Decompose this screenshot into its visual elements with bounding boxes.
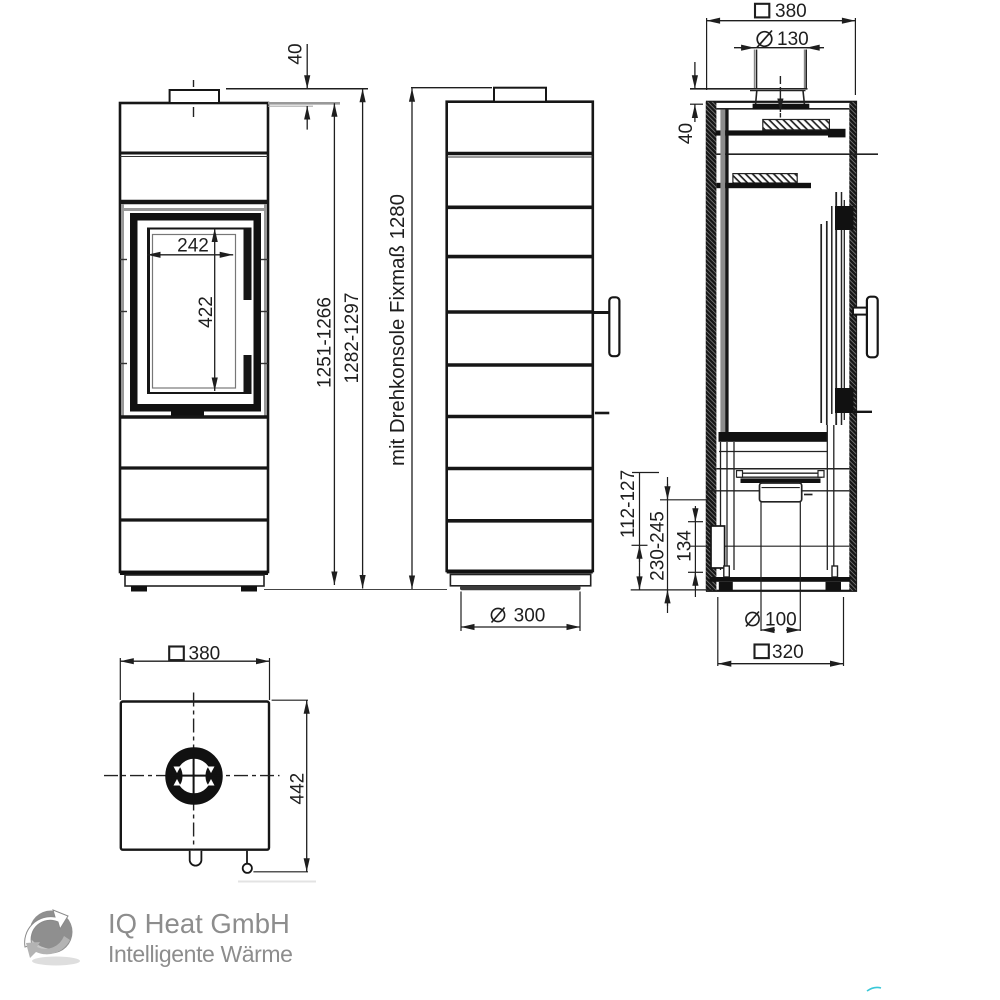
svg-text:380: 380 (775, 1, 807, 22)
svg-text:40: 40 (286, 43, 307, 64)
svg-text:1251-1266: 1251-1266 (315, 297, 336, 388)
svg-text:Intelligente Wärme: Intelligente Wärme (108, 941, 293, 967)
svg-text:300: 300 (514, 606, 546, 627)
svg-text:422: 422 (196, 296, 217, 328)
svg-text:mit Drehkonsole Fixmaß 1280: mit Drehkonsole Fixmaß 1280 (387, 194, 409, 466)
svg-text:320: 320 (772, 642, 804, 663)
svg-text:230-245: 230-245 (648, 511, 669, 581)
svg-text:112-127: 112-127 (618, 470, 639, 538)
svg-text:130: 130 (777, 29, 809, 50)
svg-text:40: 40 (676, 123, 697, 144)
svg-text:242: 242 (177, 236, 209, 257)
svg-text:134: 134 (675, 530, 696, 562)
svg-text:1282-1297: 1282-1297 (342, 293, 363, 384)
svg-text:442: 442 (288, 773, 309, 805)
svg-text:380: 380 (189, 644, 221, 665)
svg-text:100: 100 (765, 610, 797, 631)
svg-text:IQ Heat GmbH: IQ Heat GmbH (108, 908, 290, 939)
